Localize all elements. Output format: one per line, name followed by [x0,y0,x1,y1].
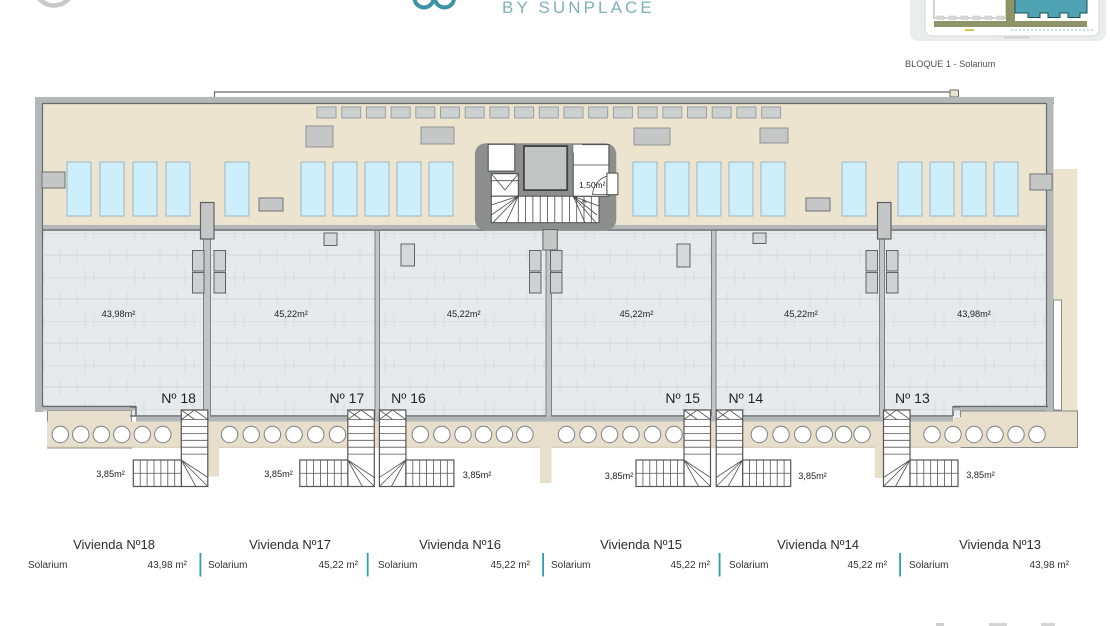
svg-text:3,85m²: 3,85m² [463,470,492,480]
svg-text:43,98m²: 43,98m² [102,309,136,319]
svg-text:Solarium: Solarium [729,560,768,571]
svg-text:Solarium: Solarium [378,560,417,571]
svg-text:45,22m²: 45,22m² [784,309,818,319]
svg-text:Nº 13: Nº 13 [895,390,930,406]
svg-text:3,85m²: 3,85m² [96,469,125,479]
svg-text:43,98 m²: 43,98 m² [1030,560,1070,571]
svg-text:Solarium: Solarium [551,560,590,571]
svg-text:Solarium: Solarium [28,560,67,571]
svg-text:3,85m²: 3,85m² [798,471,827,481]
svg-text:Nº 18: Nº 18 [161,390,196,406]
svg-text:45,22m²: 45,22m² [620,309,654,319]
svg-text:3,85m²: 3,85m² [605,471,634,481]
svg-text:BY SUNPLACE: BY SUNPLACE [502,0,655,17]
svg-text:43,98 m²: 43,98 m² [148,560,188,571]
svg-text:45,22m²: 45,22m² [447,309,481,319]
svg-text:1,50m²: 1,50m² [579,180,606,190]
svg-text:Nº 14: Nº 14 [728,390,763,406]
svg-text:Vivienda Nº14: Vivienda Nº14 [777,537,859,552]
svg-text:Vivienda Nº13: Vivienda Nº13 [959,537,1041,552]
svg-text:BLOQUE 1 - Solarium: BLOQUE 1 - Solarium [905,59,996,69]
svg-text:3,85m²: 3,85m² [966,470,995,480]
svg-text:Vivienda Nº15: Vivienda Nº15 [600,537,682,552]
svg-text:Vivienda Nº17: Vivienda Nº17 [249,537,331,552]
svg-text:45,22 m²: 45,22 m² [319,560,359,571]
svg-text:43,98m²: 43,98m² [957,309,991,319]
svg-text:45,22 m²: 45,22 m² [671,560,711,571]
svg-text:Nº 15: Nº 15 [665,390,700,406]
svg-text:Vivienda Nº16: Vivienda Nº16 [419,537,501,552]
svg-text:Nº 16: Nº 16 [391,390,426,406]
svg-text:Nº 17: Nº 17 [330,390,365,406]
svg-text:45,22 m²: 45,22 m² [848,560,888,571]
svg-text:45,22m²: 45,22m² [274,309,308,319]
svg-text:Solarium: Solarium [909,560,948,571]
svg-text:45,22 m²: 45,22 m² [491,560,531,571]
svg-text:3,85m²: 3,85m² [264,469,293,479]
svg-text:Vivienda Nº18: Vivienda Nº18 [73,537,155,552]
svg-text:Solarium: Solarium [208,560,247,571]
